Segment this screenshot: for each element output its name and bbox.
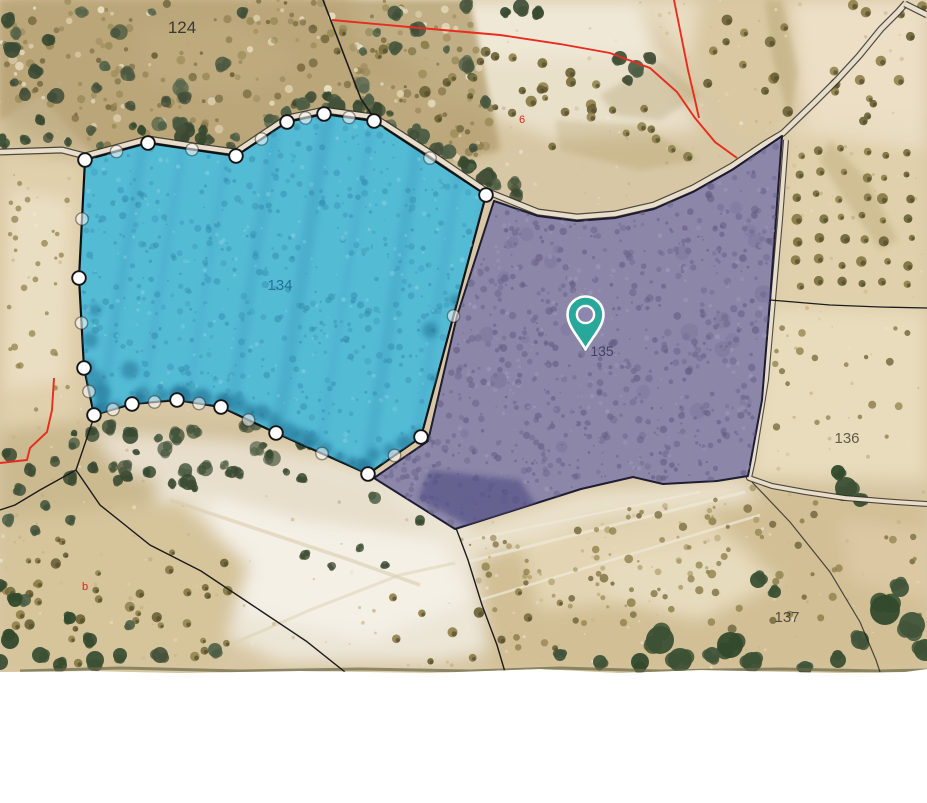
svg-text:b: b: [82, 581, 88, 593]
svg-text:124: 124: [168, 18, 196, 37]
svg-text:136: 136: [834, 430, 859, 447]
svg-text:134: 134: [267, 277, 292, 294]
svg-text:137: 137: [774, 609, 799, 626]
svg-text:135: 135: [590, 343, 614, 359]
svg-text:6: 6: [519, 114, 525, 126]
